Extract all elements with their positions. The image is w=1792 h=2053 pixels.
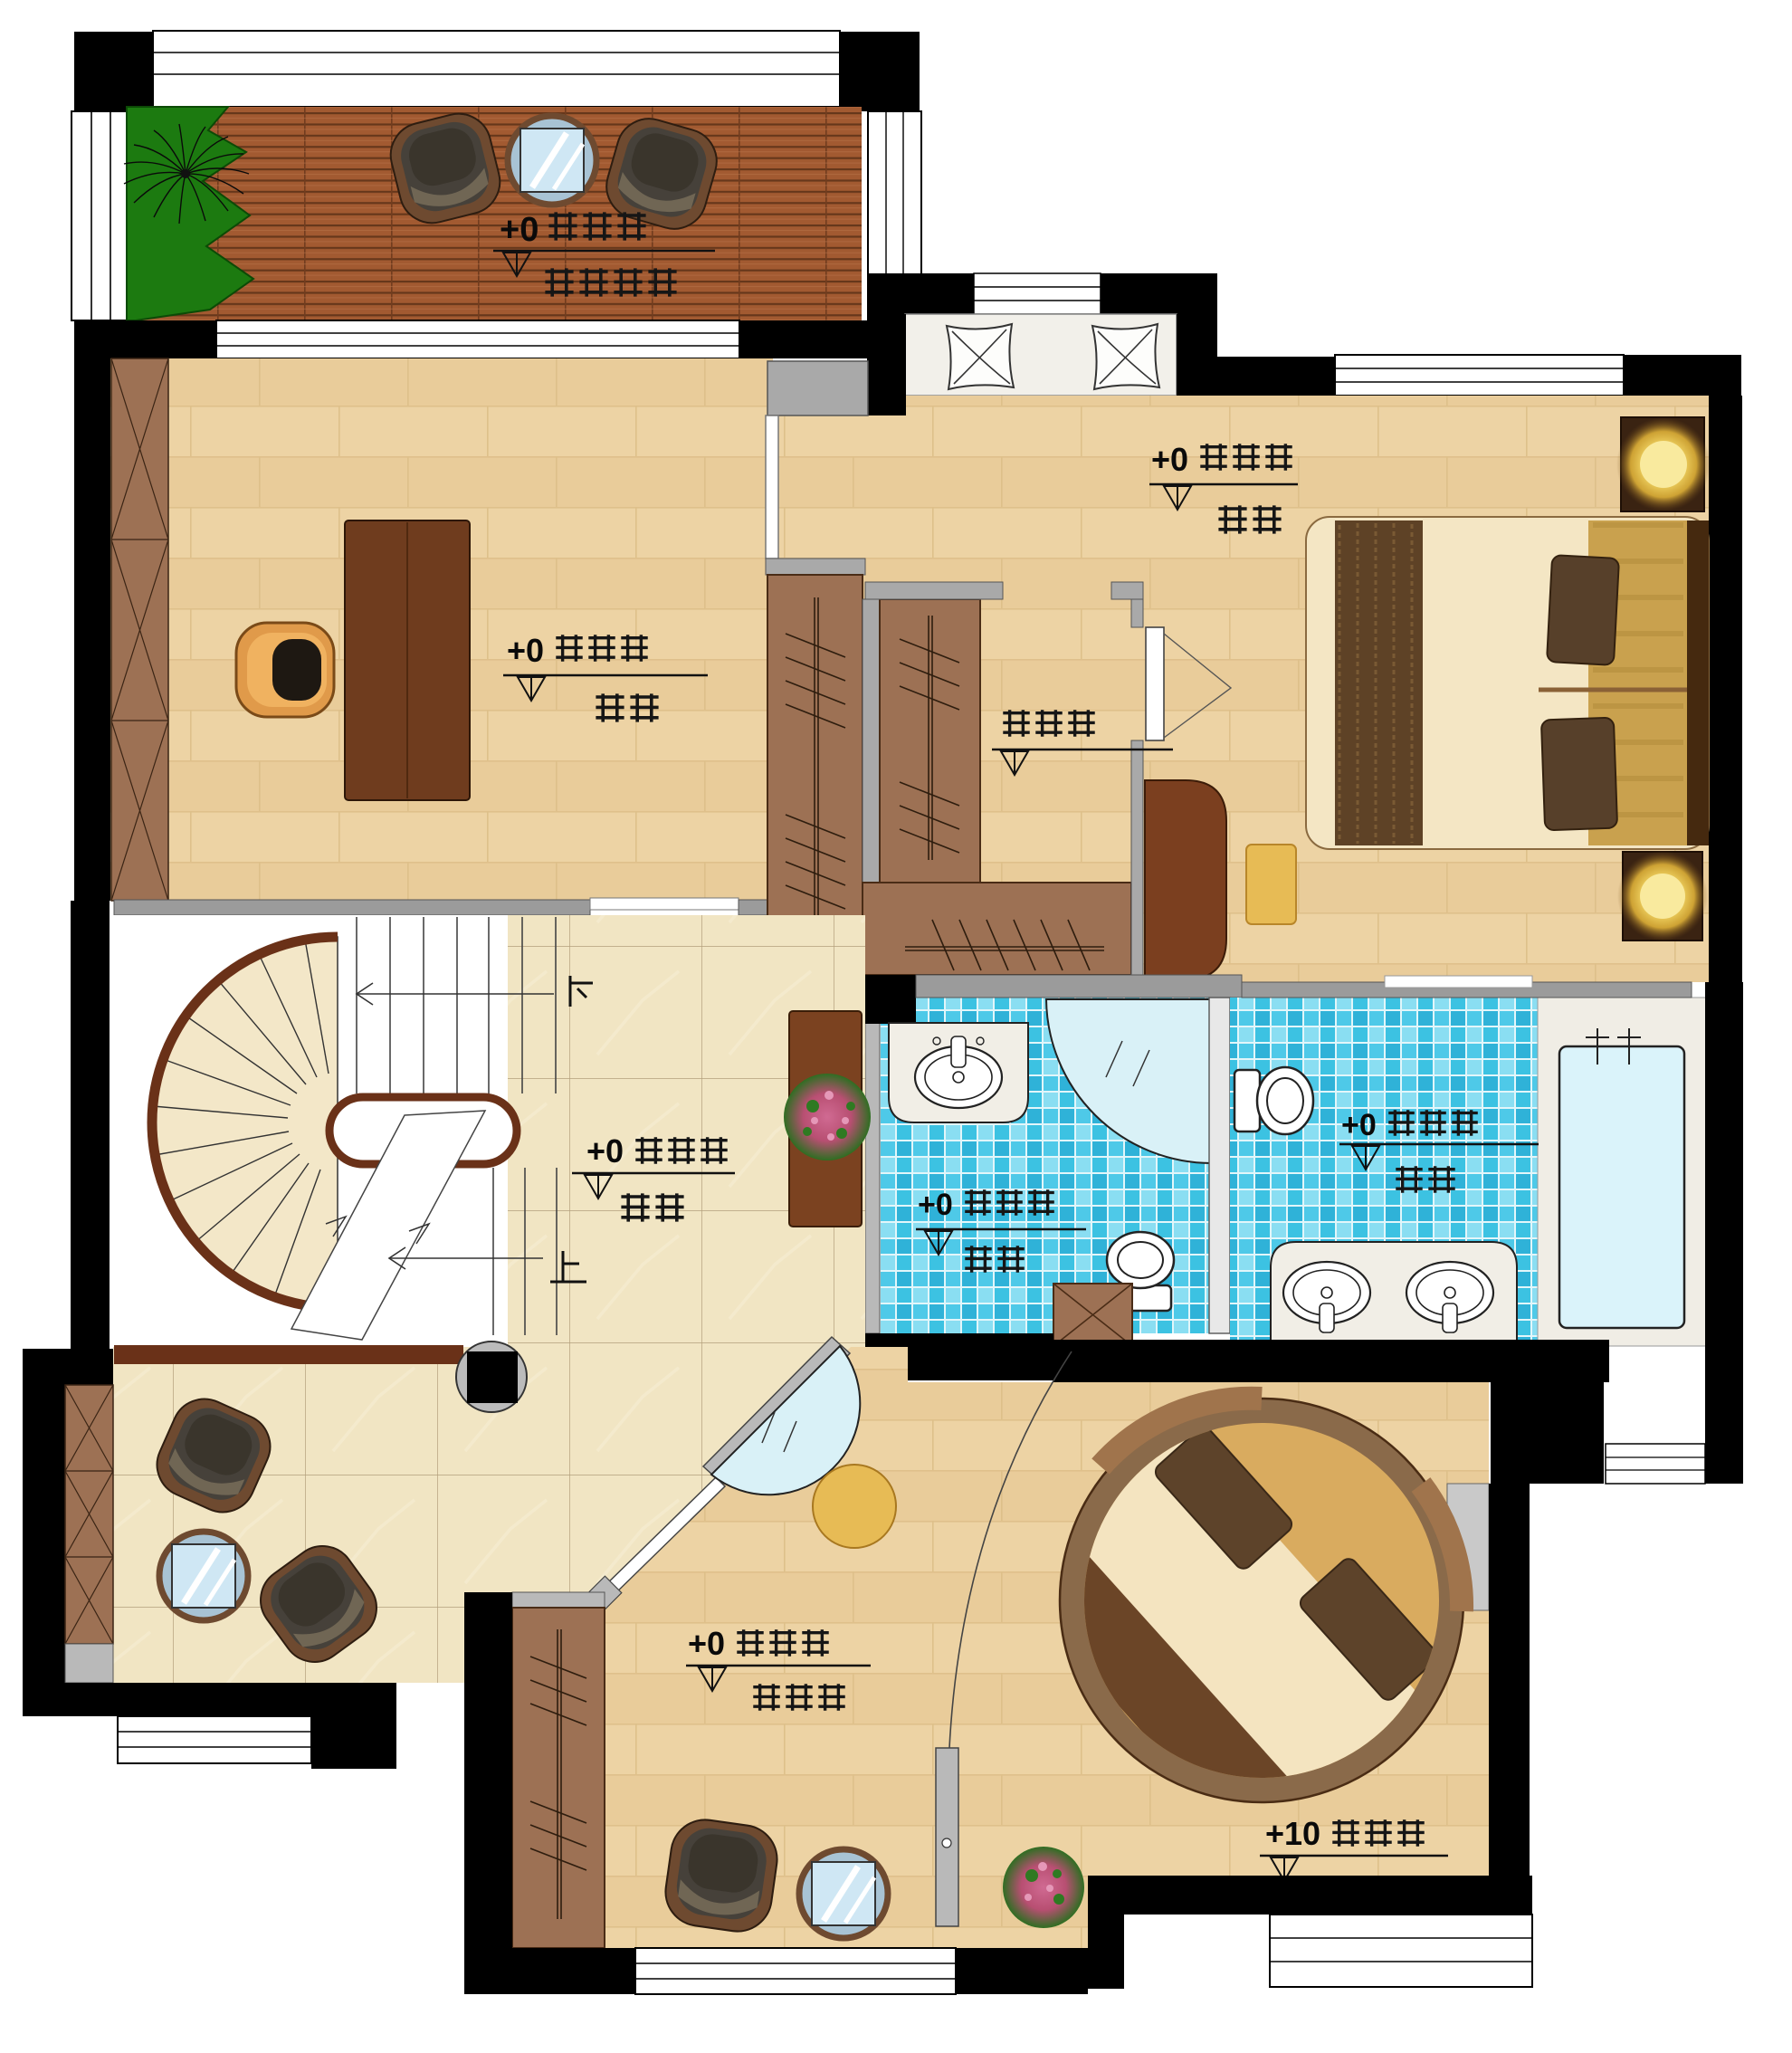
svg-text:+0: +0 <box>688 1625 725 1662</box>
svg-text:+10: +10 <box>1265 1815 1320 1852</box>
svg-text:+0: +0 <box>918 1188 953 1222</box>
svg-text:+0: +0 <box>500 211 539 249</box>
svg-text:+0: +0 <box>1151 441 1188 478</box>
svg-text:+0: +0 <box>1341 1108 1377 1142</box>
svg-text:+0: +0 <box>586 1132 624 1170</box>
svg-text:+0: +0 <box>507 632 544 669</box>
